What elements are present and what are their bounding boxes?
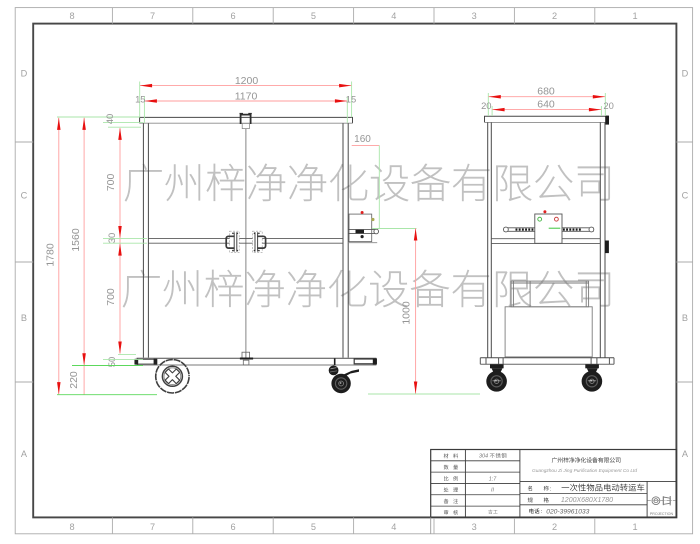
svg-text:7: 7 [150,11,155,21]
svg-text:700: 700 [105,288,117,306]
svg-text:1560: 1560 [70,228,82,252]
svg-text:7: 7 [150,522,155,532]
svg-text:PROJECTION: PROJECTION [650,512,674,516]
svg-text:1200X680X1780: 1200X680X1780 [561,497,613,504]
svg-text:640: 640 [537,99,555,111]
svg-text:2: 2 [552,522,557,532]
svg-text:5: 5 [311,522,316,532]
svg-text:6: 6 [230,11,235,21]
svg-text:700: 700 [105,173,117,191]
svg-text:1780: 1780 [45,243,57,267]
svg-text:C: C [21,191,28,201]
svg-text:1200: 1200 [235,75,259,87]
svg-text:8: 8 [69,11,74,21]
svg-text:020-39961033: 020-39961033 [546,508,589,515]
svg-text:Guangzhou Zi Jing Purification: Guangzhou Zi Jing Purification Equipment… [532,468,637,474]
svg-text:8: 8 [69,522,74,532]
svg-text:1: 1 [632,11,637,21]
svg-text:40: 40 [105,114,116,125]
svg-text:C: C [682,191,689,201]
svg-text:220: 220 [68,371,80,389]
svg-text:6: 6 [230,522,235,532]
svg-text:3: 3 [472,522,477,532]
svg-text:680: 680 [537,86,555,98]
svg-text:15: 15 [135,94,145,105]
svg-text::: : [550,486,552,492]
svg-text:4: 4 [391,11,396,21]
svg-text:II: II [491,488,494,494]
svg-text:3: 3 [472,11,477,21]
svg-text:D: D [21,69,28,79]
svg-text:20: 20 [603,100,613,111]
svg-text:D: D [682,69,689,79]
svg-text:160: 160 [354,134,371,145]
svg-text:304: 304 [479,454,488,460]
svg-text:5: 5 [311,11,316,21]
svg-text:2: 2 [552,11,557,21]
svg-text:A: A [21,449,28,459]
svg-text:1: 1 [632,522,637,532]
svg-text:15: 15 [346,94,356,105]
svg-text:20: 20 [481,100,491,111]
svg-text:A: A [682,449,689,459]
svg-text:1:7: 1:7 [489,476,497,482]
svg-text:1000: 1000 [401,301,413,325]
svg-text:4: 4 [391,522,396,532]
svg-text:B: B [21,313,27,323]
svg-text:1170: 1170 [235,91,258,103]
svg-text:B: B [682,313,688,323]
